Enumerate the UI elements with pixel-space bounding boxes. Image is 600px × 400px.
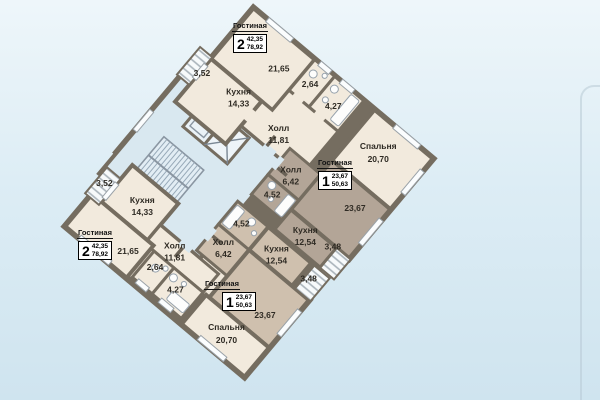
area-label: 4,52 — [264, 190, 281, 200]
badge-apt2-top[interactable]: Гостиная 2 42,35 78,92 — [228, 15, 272, 53]
room-name-label: Кухня — [264, 244, 289, 254]
area-label: 23,67 — [254, 310, 276, 320]
badge-box: 1 23,67 50,63 — [318, 171, 352, 190]
living-area-value: 23,67 — [332, 173, 348, 181]
total-area-value: 78,92 — [247, 44, 263, 52]
total-area-value: 50,63 — [332, 181, 348, 189]
total-area-value: 50,63 — [236, 302, 252, 310]
area-label: 12,54 — [295, 237, 317, 247]
rooms-count: 1 — [322, 174, 330, 188]
room-name-label: Кухня — [226, 87, 251, 97]
badge-apt1-upper[interactable]: Гостиная 1 23,67 50,63 — [313, 152, 357, 190]
badge-box: 1 23,67 50,63 — [222, 292, 256, 311]
room-name-label: Холл — [164, 240, 185, 250]
badge-room-label: Гостиная — [317, 159, 353, 169]
area-label: 3,52 — [96, 178, 113, 188]
badge-room-label: Гостиная — [204, 280, 240, 290]
rooms-count: 2 — [82, 244, 90, 258]
area-label: 4,27 — [325, 101, 342, 111]
area-label: 3,48 — [325, 242, 342, 252]
area-label: 4,27 — [167, 285, 184, 295]
area-label: 12,54 — [266, 256, 288, 266]
area-label: 2,64 — [147, 262, 164, 272]
room-name-label: Спальня — [360, 141, 397, 151]
area-label: 20,70 — [368, 154, 390, 164]
rooms-count: 2 — [237, 37, 245, 51]
panel-edge-decoration — [580, 85, 600, 400]
badge-apt1-lower[interactable]: Гостиная 1 23,67 50,63 — [217, 273, 261, 311]
room-name-label: Спальня — [208, 322, 245, 332]
badge-box: 2 42,35 78,92 — [78, 241, 112, 260]
badge-room-label: Гостиная — [77, 229, 113, 239]
area-label: 3,48 — [300, 274, 317, 284]
area-label: 6,42 — [215, 249, 232, 259]
area-label: 11,81 — [268, 135, 289, 145]
area-label: 11,81 — [164, 252, 185, 262]
room-name-label: Кухня — [130, 195, 155, 205]
room-name-label: Кухня — [293, 225, 318, 235]
floor-plan-svg: 21,65 2,64 4,27 Кухня 14,33 Холл 11,81 С… — [0, 0, 600, 400]
area-label: 4,52 — [233, 218, 250, 228]
room-name-label: Холл — [280, 164, 301, 174]
area-label: 23,67 — [344, 203, 366, 213]
room-name-label: Холл — [213, 237, 234, 247]
area-label: 20,70 — [216, 335, 238, 345]
area-label: 21,65 — [117, 246, 139, 256]
area-label: 3,52 — [194, 68, 211, 78]
area-label: 21,65 — [268, 63, 290, 73]
living-area-value: 23,67 — [236, 294, 252, 302]
living-area-value: 42,35 — [247, 36, 263, 44]
area-label: 14,33 — [228, 99, 250, 109]
total-area-value: 78,92 — [92, 251, 108, 259]
badge-room-label: Гостиная — [232, 22, 268, 32]
area-label: 14,33 — [132, 207, 154, 217]
living-area-value: 42,35 — [92, 243, 108, 251]
badge-apt2-bottom[interactable]: Гостиная 2 42,35 78,92 — [73, 222, 117, 260]
room-name-label: Холл — [268, 123, 289, 133]
area-label: 2,64 — [302, 79, 319, 89]
badge-box: 2 42,35 78,92 — [233, 34, 267, 53]
rooms-count: 1 — [226, 295, 234, 309]
area-label: 6,42 — [283, 176, 300, 186]
floor-plan-page: 21,65 2,64 4,27 Кухня 14,33 Холл 11,81 С… — [0, 0, 600, 400]
